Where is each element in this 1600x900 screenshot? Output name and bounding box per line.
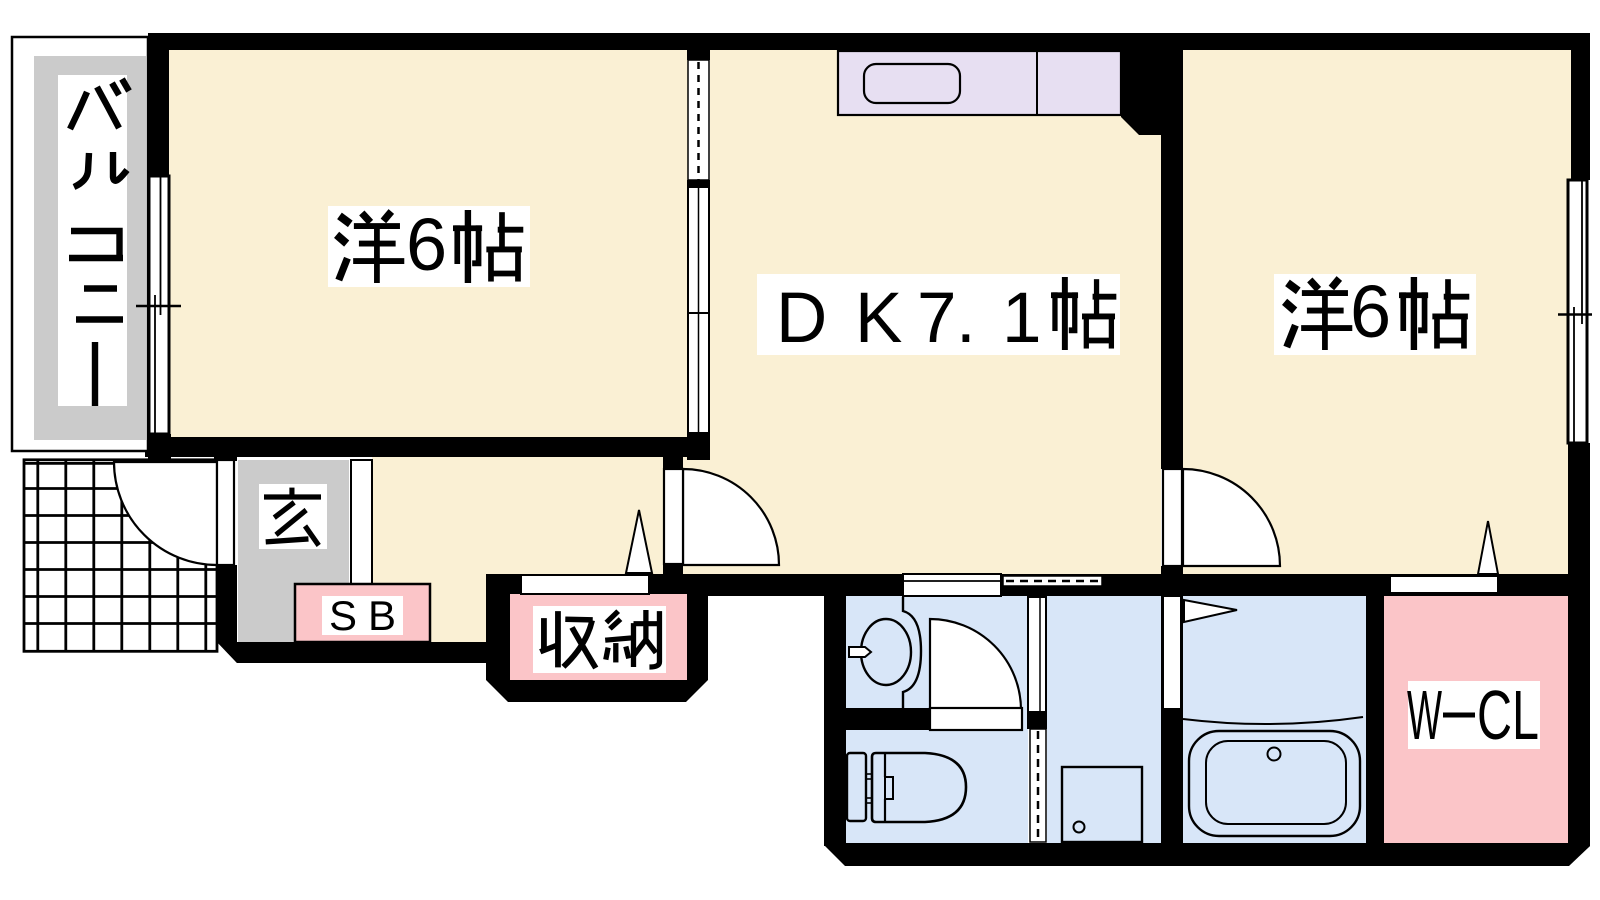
svg-text:S: S <box>329 592 357 639</box>
svg-text:6: 6 <box>1350 270 1391 353</box>
svg-text:6: 6 <box>406 203 447 286</box>
svg-text:1: 1 <box>1002 279 1042 358</box>
svg-text:B: B <box>368 592 396 639</box>
svg-text:K: K <box>855 279 902 358</box>
svg-text:D: D <box>776 279 827 358</box>
svg-text:.: . <box>956 279 976 358</box>
svg-text:7: 7 <box>917 279 957 358</box>
svg-text:CL: CL <box>1477 676 1539 754</box>
svg-text:W: W <box>1407 676 1442 754</box>
